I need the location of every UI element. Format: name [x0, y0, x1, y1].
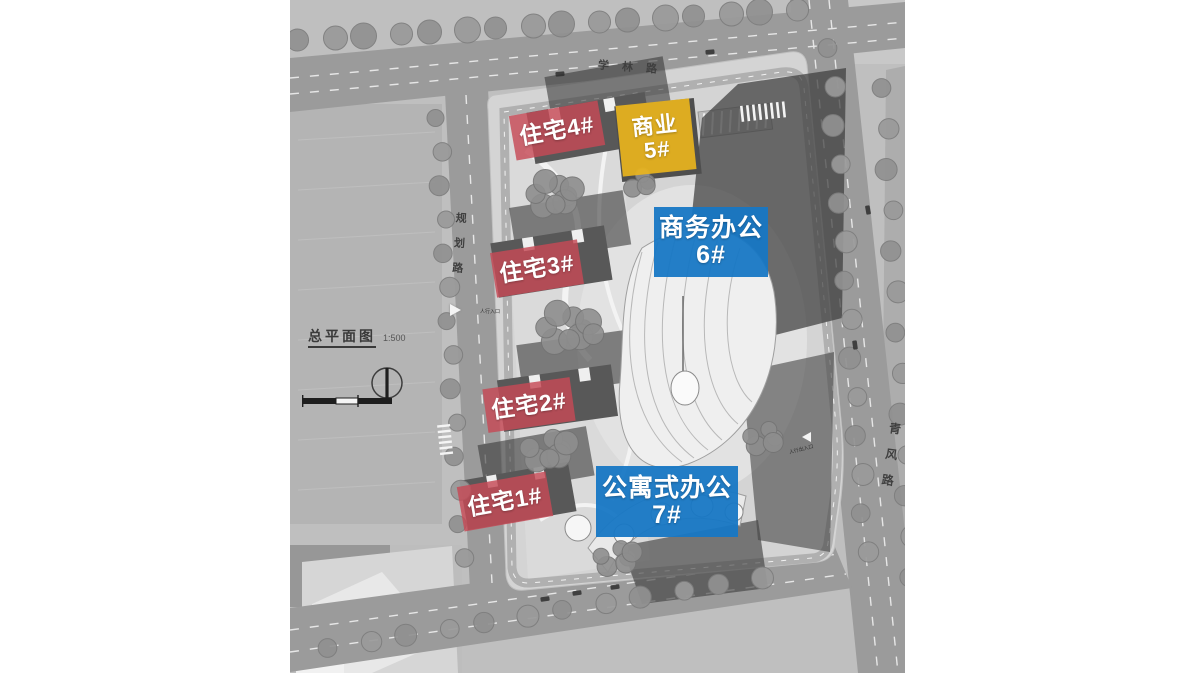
axis-plaza	[671, 371, 699, 405]
drawing-title-block: 总平面图1:500	[308, 326, 406, 346]
label-text: 住宅3#	[498, 250, 577, 286]
label-commercial-5: 商业 5#	[615, 98, 696, 176]
label-text: 商务办公	[659, 215, 763, 242]
entrance-arrow-east-icon	[802, 432, 811, 442]
label-text: 住宅2#	[490, 387, 568, 422]
label-number: 7#	[652, 502, 682, 529]
label-apartment-office-7: 公寓式办公 7#	[596, 466, 738, 537]
label-number: 5#	[643, 136, 672, 162]
site-plan-page: 学林路 规划路 青风路 人行入口 人行出入口 住宅4# 商业 5# 商务办公 6…	[0, 0, 1200, 673]
west-plaza-block	[290, 104, 442, 524]
label-text: 公寓式办公	[602, 475, 732, 502]
pedestrian-entrance-note: 人行入口	[480, 307, 500, 315]
scale-bar	[302, 395, 392, 407]
label-text: 住宅4#	[518, 112, 597, 150]
label-office-6: 商务办公 6#	[654, 207, 768, 277]
label-text: 商业	[631, 111, 679, 139]
drawing-scale: 1:500	[383, 333, 406, 343]
drawing-title: 总平面图	[308, 328, 376, 348]
entrance-arrow-west-icon	[450, 304, 461, 316]
label-text: 住宅1#	[466, 483, 545, 521]
label-number: 6#	[696, 242, 726, 269]
